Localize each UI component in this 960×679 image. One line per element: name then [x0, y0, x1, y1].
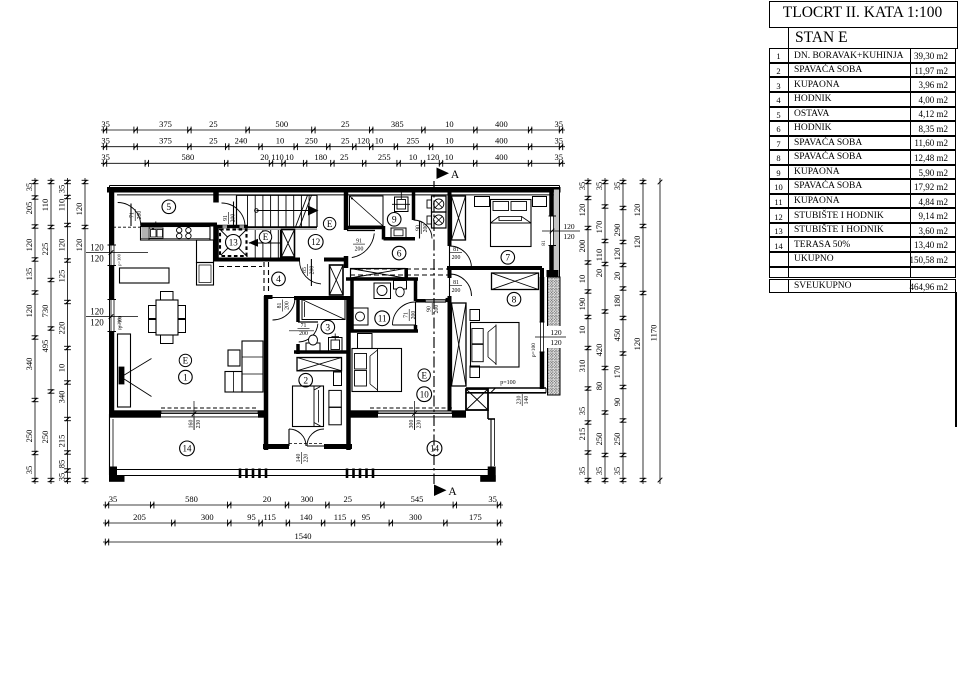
svg-text:10: 10: [375, 136, 384, 146]
svg-text:10: 10: [56, 364, 66, 373]
svg-text:35: 35: [101, 152, 110, 162]
svg-text:35: 35: [56, 185, 66, 194]
svg-text:200: 200: [231, 214, 237, 223]
svg-text:10: 10: [445, 152, 454, 162]
svg-text:2: 2: [303, 376, 308, 386]
svg-text:14: 14: [183, 443, 193, 453]
svg-text:110: 110: [40, 199, 50, 211]
svg-text:200: 200: [310, 266, 316, 275]
svg-text:10: 10: [409, 152, 418, 162]
svg-text:35: 35: [577, 407, 587, 416]
svg-text:200: 200: [577, 240, 587, 253]
svg-text:81: 81: [453, 280, 459, 286]
svg-text:310: 310: [577, 360, 587, 373]
svg-text:385: 385: [391, 119, 404, 129]
svg-text:400: 400: [495, 152, 508, 162]
svg-text:170: 170: [612, 366, 622, 379]
svg-text:200: 200: [355, 247, 364, 253]
svg-text:85: 85: [56, 460, 66, 469]
svg-text:340: 340: [24, 358, 34, 371]
svg-text:230: 230: [417, 420, 423, 429]
svg-text:125: 125: [56, 270, 66, 283]
svg-text:3: 3: [325, 323, 330, 333]
svg-text:300: 300: [409, 512, 422, 522]
svg-text:225: 225: [40, 243, 50, 256]
svg-text:25: 25: [341, 136, 350, 146]
svg-text:200: 200: [285, 301, 291, 310]
svg-text:300: 300: [301, 494, 314, 504]
svg-text:10: 10: [285, 152, 294, 162]
svg-text:120: 120: [632, 338, 642, 351]
svg-text:12: 12: [311, 237, 320, 247]
svg-text:420: 420: [594, 344, 604, 357]
svg-text:250: 250: [40, 431, 50, 444]
svg-text:120: 120: [74, 203, 84, 216]
svg-text:290: 290: [612, 224, 622, 237]
svg-text:71: 71: [301, 323, 307, 329]
svg-text:545: 545: [411, 494, 424, 504]
svg-text:35: 35: [555, 136, 564, 146]
svg-text:175: 175: [469, 512, 482, 522]
svg-text:120: 120: [357, 136, 370, 146]
svg-text:35: 35: [577, 182, 587, 191]
svg-text:10: 10: [445, 119, 454, 129]
svg-text:35: 35: [612, 467, 622, 476]
svg-text:p=100: p=100: [500, 380, 515, 386]
svg-text:p=100: p=100: [531, 343, 537, 357]
svg-text:E: E: [327, 219, 333, 229]
svg-text:25: 25: [340, 152, 349, 162]
svg-text:35: 35: [555, 119, 564, 129]
svg-text:35: 35: [594, 467, 604, 476]
svg-text:71: 71: [403, 312, 409, 318]
svg-text:20: 20: [612, 272, 622, 281]
svg-text:110: 110: [56, 199, 66, 211]
svg-text:255: 255: [407, 136, 420, 146]
svg-text:14: 14: [430, 443, 440, 453]
svg-text:10: 10: [577, 275, 587, 284]
svg-text:170: 170: [594, 221, 604, 234]
svg-text:91: 91: [356, 238, 362, 244]
svg-text:20: 20: [594, 269, 604, 278]
svg-text:190: 190: [577, 298, 587, 311]
svg-text:230: 230: [516, 396, 522, 405]
svg-text:400: 400: [495, 119, 508, 129]
svg-text:200: 200: [411, 311, 417, 320]
svg-text:11: 11: [378, 313, 387, 323]
svg-text:35: 35: [24, 183, 34, 192]
svg-text:25: 25: [209, 119, 218, 129]
svg-text:10: 10: [577, 326, 587, 335]
svg-text:730: 730: [40, 305, 50, 318]
svg-text:375: 375: [159, 119, 172, 129]
svg-text:35: 35: [488, 494, 497, 504]
svg-text:205: 205: [24, 202, 34, 215]
svg-text:7: 7: [505, 254, 510, 264]
svg-text:115: 115: [263, 512, 275, 522]
svg-text:10: 10: [445, 136, 454, 146]
svg-text:120: 120: [577, 204, 587, 217]
svg-text:200: 200: [299, 331, 308, 337]
svg-text:4: 4: [276, 275, 281, 285]
svg-text:115: 115: [334, 512, 346, 522]
svg-text:90: 90: [612, 398, 622, 407]
svg-text:200: 200: [434, 305, 440, 314]
svg-text:400: 400: [495, 136, 508, 146]
svg-text:35: 35: [101, 119, 110, 129]
svg-text:E: E: [183, 356, 189, 366]
svg-text:120: 120: [90, 243, 104, 253]
svg-text:1540: 1540: [295, 531, 312, 541]
svg-text:230: 230: [196, 420, 202, 429]
svg-text:85: 85: [302, 267, 308, 273]
svg-text:A: A: [451, 169, 460, 181]
svg-text:120: 120: [427, 152, 440, 162]
svg-text:300: 300: [201, 512, 214, 522]
svg-text:495: 495: [40, 340, 50, 353]
svg-text:120: 120: [90, 318, 104, 328]
svg-text:p=100: p=100: [117, 317, 122, 329]
svg-text:240: 240: [235, 136, 248, 146]
svg-text:35: 35: [612, 182, 622, 191]
svg-text:80: 80: [594, 382, 604, 391]
svg-text:120: 120: [56, 239, 66, 252]
svg-text:140: 140: [300, 512, 313, 522]
svg-text:35: 35: [554, 152, 563, 162]
svg-text:p=100: p=100: [117, 253, 122, 265]
svg-text:215: 215: [56, 435, 66, 448]
svg-text:10: 10: [276, 136, 285, 146]
svg-text:71: 71: [129, 212, 135, 218]
svg-text:180: 180: [612, 295, 622, 308]
svg-text:1: 1: [183, 373, 188, 383]
svg-text:1170: 1170: [649, 325, 659, 342]
svg-text:35: 35: [577, 467, 587, 476]
svg-text:E: E: [263, 232, 269, 242]
svg-text:140: 140: [296, 454, 302, 463]
svg-text:200: 200: [452, 288, 461, 294]
svg-text:200: 200: [137, 211, 143, 220]
svg-text:13: 13: [229, 237, 239, 247]
svg-text:A: A: [448, 486, 457, 498]
svg-text:6: 6: [397, 249, 402, 259]
svg-text:90: 90: [415, 225, 421, 231]
svg-text:120: 120: [90, 307, 104, 317]
svg-text:200: 200: [423, 224, 429, 233]
svg-text:160: 160: [188, 420, 194, 429]
svg-text:255: 255: [378, 152, 391, 162]
svg-text:140: 140: [524, 396, 530, 405]
svg-text:95: 95: [247, 512, 256, 522]
svg-text:205: 205: [133, 512, 146, 522]
svg-text:25: 25: [344, 494, 353, 504]
svg-text:120: 120: [632, 236, 642, 249]
svg-text:81: 81: [541, 240, 547, 246]
svg-text:20: 20: [260, 152, 269, 162]
svg-text:10: 10: [420, 389, 430, 399]
svg-text:340: 340: [56, 391, 66, 404]
svg-text:35: 35: [101, 136, 110, 146]
svg-text:20: 20: [263, 494, 272, 504]
svg-text:95: 95: [362, 512, 371, 522]
svg-text:200: 200: [452, 255, 461, 261]
svg-text:220: 220: [56, 322, 66, 335]
svg-text:250: 250: [594, 433, 604, 446]
svg-text:81: 81: [277, 303, 283, 309]
svg-text:120: 120: [563, 232, 575, 241]
svg-text:120: 120: [24, 305, 34, 318]
svg-text:250: 250: [24, 430, 34, 443]
svg-text:120: 120: [563, 222, 575, 231]
svg-text:81: 81: [453, 247, 459, 253]
svg-text:120: 120: [550, 328, 562, 337]
svg-text:120: 120: [90, 254, 104, 264]
svg-text:450: 450: [612, 329, 622, 342]
svg-text:35: 35: [594, 182, 604, 191]
svg-text:E: E: [421, 370, 427, 380]
svg-text:500: 500: [275, 119, 288, 129]
svg-text:120: 120: [24, 239, 34, 252]
svg-text:300: 300: [409, 420, 415, 429]
svg-text:91: 91: [223, 215, 229, 221]
svg-text:110: 110: [271, 152, 283, 162]
svg-text:120: 120: [612, 248, 622, 261]
svg-text:135: 135: [24, 268, 34, 281]
svg-text:375: 375: [159, 136, 172, 146]
svg-text:8: 8: [512, 295, 517, 305]
svg-text:120: 120: [74, 239, 84, 252]
svg-text:120: 120: [632, 204, 642, 217]
svg-text:580: 580: [182, 152, 195, 162]
svg-text:90: 90: [426, 306, 432, 312]
svg-text:250: 250: [612, 433, 622, 446]
svg-text:110: 110: [594, 249, 604, 261]
svg-text:35: 35: [56, 473, 66, 482]
svg-text:5: 5: [166, 203, 171, 213]
svg-text:35: 35: [24, 466, 34, 475]
svg-text:35: 35: [109, 494, 118, 504]
svg-text:120: 120: [550, 338, 562, 347]
svg-text:25: 25: [209, 136, 218, 146]
svg-text:580: 580: [185, 494, 198, 504]
svg-text:9: 9: [392, 216, 397, 226]
svg-text:25: 25: [341, 119, 350, 129]
svg-text:250: 250: [305, 136, 318, 146]
svg-text:180: 180: [314, 152, 327, 162]
svg-text:215: 215: [577, 428, 587, 441]
svg-text:220: 220: [304, 454, 310, 463]
